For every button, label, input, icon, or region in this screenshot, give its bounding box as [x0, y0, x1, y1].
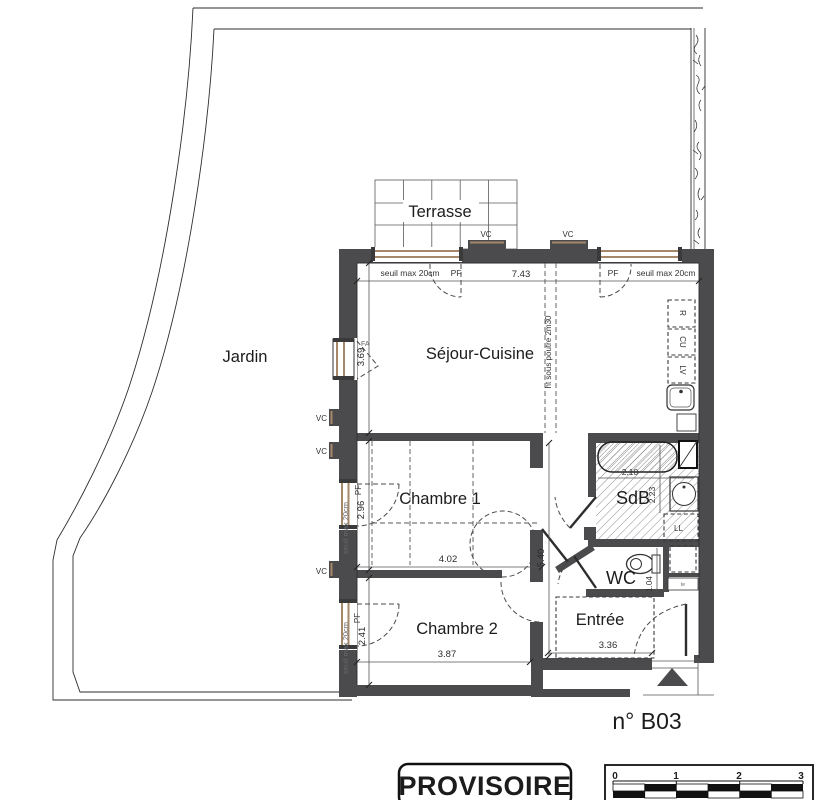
dim-chambre2-width: 3.87 — [438, 649, 457, 660]
entree-label: Entrée — [576, 611, 625, 629]
terrasse-area: Terrasse — [375, 180, 517, 249]
pf-label-ch1: PF — [354, 485, 363, 495]
vc-label-top-1: VC — [480, 230, 491, 239]
threshold-note-top-left: seuil max 20cm — [380, 268, 439, 278]
beam-line: ht sous poutre 2m30 — [544, 263, 556, 433]
vc-label-top-2: VC — [562, 230, 573, 239]
dim-chambre1-depth: 2.96 — [356, 501, 367, 520]
pf-label-top-left: PF — [451, 268, 462, 278]
floor-plan-drawing: Terrasse — [0, 0, 815, 800]
vc-label-left-1: VC — [316, 414, 327, 423]
kitchen-strip: R CU LV — [667, 300, 696, 431]
entry-marker-triangle — [657, 668, 688, 686]
wc-door-leaf — [574, 556, 596, 588]
wc-room: te — [627, 546, 699, 590]
scale-bar: 0 1 2 3 — [605, 765, 813, 800]
scale-tick-3: 3 — [798, 771, 804, 782]
sejour-label: Séjour-Cuisine — [426, 345, 534, 363]
unit-number: n° B03 — [612, 708, 681, 734]
threshold-note-ch1: seuil max 20cm — [341, 502, 350, 554]
sdb-label: SdB — [616, 488, 650, 508]
floor-plan-page: Terrasse — [0, 0, 815, 800]
dishwasher-label: LV — [678, 365, 687, 375]
vc-vent-top-2 — [550, 240, 588, 249]
room-labels: Jardin Séjour-Cuisine Chambre 1 Chambre … — [223, 345, 650, 638]
dim-chambre2-depth: 2.41 — [357, 627, 368, 646]
washer-label: LL — [674, 524, 683, 533]
wc-cabinet — [670, 546, 696, 572]
kitchen-sink — [667, 385, 694, 410]
technical-label: te — [681, 582, 685, 588]
vc-label-left-2: VC — [316, 447, 327, 456]
hedge-strip — [691, 28, 706, 249]
chambre2-label: Chambre 2 — [416, 620, 498, 638]
dim-wc-depth: 1.04 — [645, 576, 654, 592]
dim-hall-depth: 5.40 — [536, 549, 547, 568]
fa-label: FA — [361, 341, 370, 348]
dim-entree-width: 3.36 — [599, 640, 618, 651]
dim-sejour-depth: 3.69 — [356, 348, 367, 367]
dim-sejour-width: 7.43 — [512, 269, 531, 280]
scale-tick-1: 1 — [673, 771, 679, 782]
wc-label: WC — [606, 568, 636, 588]
vc-label-left-3: VC — [316, 567, 327, 576]
pf-label-ch2: PF — [353, 613, 362, 623]
chambre1-label: Chambre 1 — [399, 490, 481, 508]
fridge-label: R — [678, 310, 687, 316]
terrasse-label: Terrasse — [408, 203, 471, 221]
jardin-label: Jardin — [223, 348, 268, 366]
sdb-door-leaf — [570, 497, 596, 528]
scale-tick-2: 2 — [736, 771, 742, 782]
vc-vent-top-1 — [468, 240, 506, 249]
cooktop-label: CU — [678, 336, 687, 348]
threshold-note-top-right: seuil max 20cm — [636, 268, 695, 278]
provisional-stamp: PROVISOIRE — [398, 771, 571, 800]
pf-label-top-right: PF — [608, 268, 619, 278]
water-heater-box — [677, 414, 696, 431]
footer: n° B03 PROVISOIRE 0 1 2 3 — [398, 708, 813, 800]
beam-note: ht sous poutre 2m30 — [544, 315, 553, 388]
scale-tick-0: 0 — [612, 771, 618, 782]
dim-sdb-width: 2.10 — [622, 467, 639, 477]
dim-chambre1-width: 4.02 — [439, 554, 458, 565]
threshold-note-ch2: seuil max 20cm — [341, 622, 350, 674]
